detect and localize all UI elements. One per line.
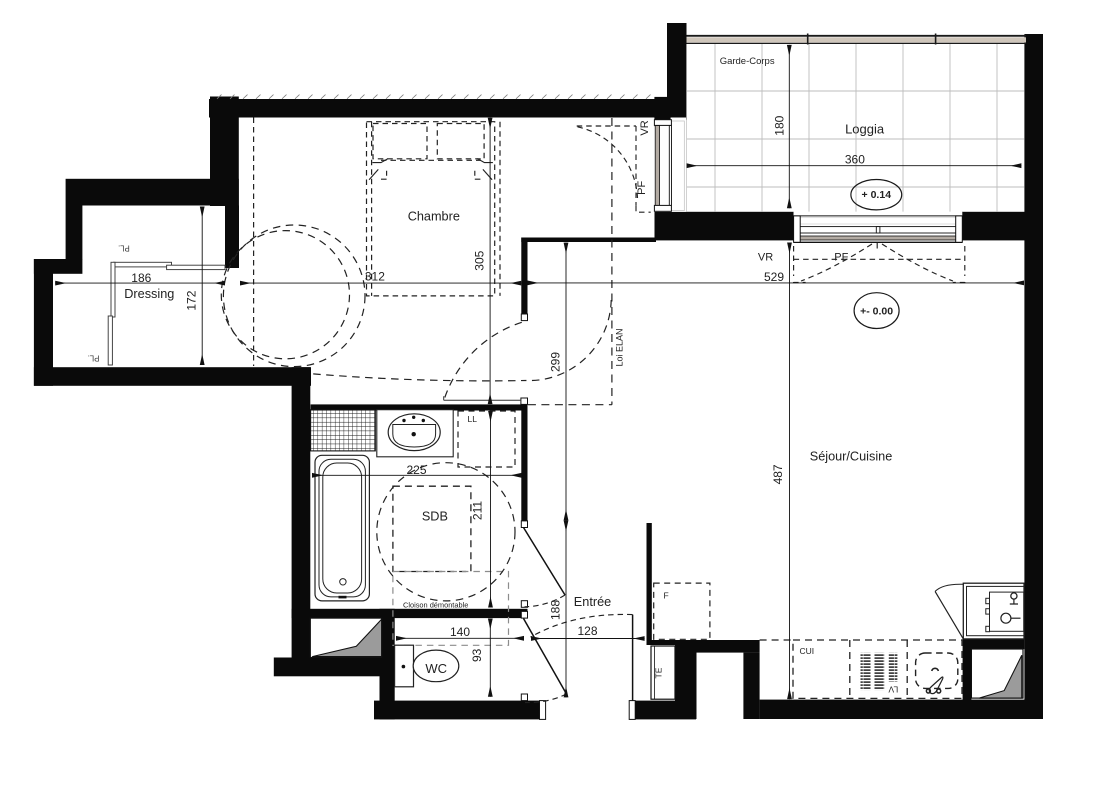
svg-text:180: 180 <box>772 115 786 135</box>
svg-text:140: 140 <box>450 625 470 639</box>
svg-text:312: 312 <box>365 270 385 284</box>
svg-text:TE: TE <box>654 667 664 678</box>
svg-text:LL: LL <box>468 414 478 424</box>
svg-text:211: 211 <box>471 501 485 520</box>
svg-text:WC: WC <box>425 661 447 676</box>
svg-text:Dressing: Dressing <box>124 287 174 301</box>
svg-text:188: 188 <box>549 600 563 620</box>
svg-text:225: 225 <box>406 463 426 477</box>
svg-text:Loi ELAN: Loi ELAN <box>615 328 625 366</box>
svg-text:529: 529 <box>764 270 784 284</box>
svg-text:305: 305 <box>472 250 486 270</box>
svg-text:VR: VR <box>758 252 773 264</box>
svg-text:360: 360 <box>845 153 865 167</box>
svg-text:PL.: PL. <box>118 243 130 252</box>
svg-text:+- 0.00: +- 0.00 <box>860 305 893 317</box>
svg-text:Entrée: Entrée <box>574 595 611 609</box>
svg-text:PF: PF <box>834 252 848 264</box>
svg-text:F: F <box>664 591 669 601</box>
svg-text:93: 93 <box>470 648 484 662</box>
svg-text:VR: VR <box>639 120 651 135</box>
svg-text:172: 172 <box>184 290 198 310</box>
svg-text:487: 487 <box>771 464 785 484</box>
svg-text:Garde-Corps: Garde-Corps <box>720 56 775 67</box>
svg-text:186: 186 <box>131 271 151 285</box>
svg-text:PL.: PL. <box>88 354 100 363</box>
svg-text:+ 0.14: + 0.14 <box>862 189 892 201</box>
svg-text:Cloison démontable: Cloison démontable <box>403 601 468 610</box>
svg-text:Séjour/Cuisine: Séjour/Cuisine <box>810 450 893 464</box>
svg-text:128: 128 <box>577 624 597 638</box>
svg-text:Chambre: Chambre <box>408 209 460 223</box>
svg-text:SDB: SDB <box>422 510 448 524</box>
svg-text:Loggia: Loggia <box>845 122 885 137</box>
svg-text:299: 299 <box>549 352 563 372</box>
svg-text:LV: LV <box>888 684 898 694</box>
svg-text:CUI: CUI <box>800 646 815 656</box>
svg-text:PF: PF <box>636 180 648 194</box>
